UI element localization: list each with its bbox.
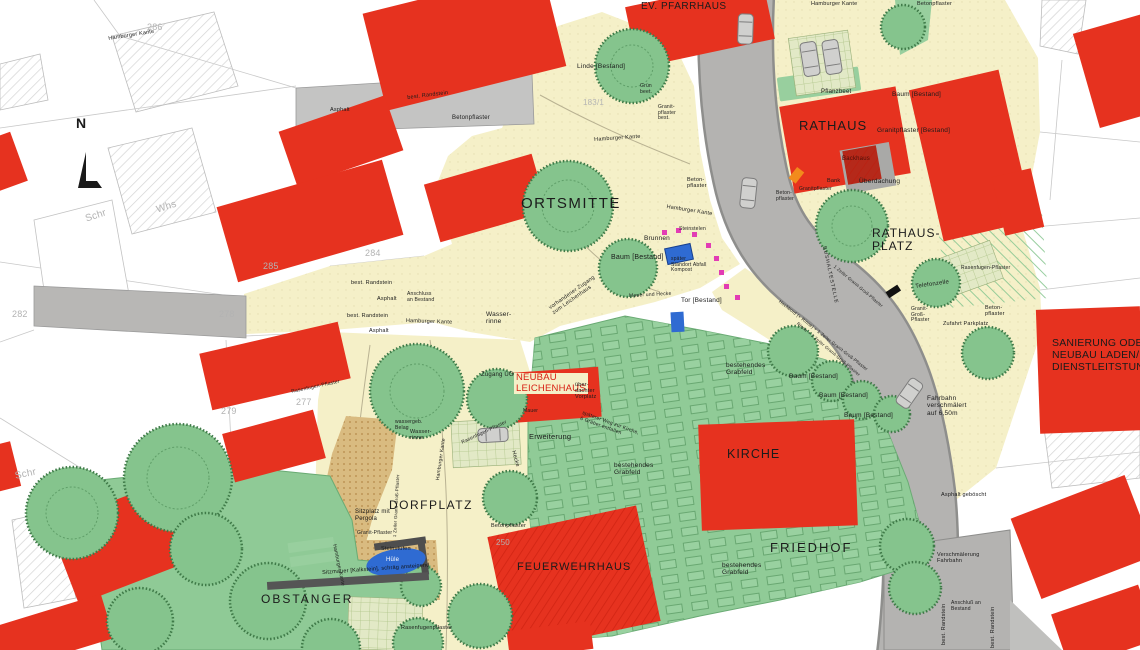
building-corner-ne: [1073, 14, 1140, 128]
wasserstelle: [670, 312, 684, 333]
tree-rathausplatz: [816, 190, 888, 262]
north-arrow: [78, 152, 102, 188]
site-plan-ortsmitte: ORTSMITTERATHAUSRATHAUS- PLATZKIRCHEFRIE…: [0, 0, 1140, 650]
building-west-2: [222, 410, 326, 483]
plan-drawing: [0, 0, 1140, 650]
building-southeast-1: [1011, 475, 1140, 599]
backhaus-group: [840, 142, 897, 194]
tree-linde: [595, 29, 669, 103]
tree-ortsmitte: [523, 161, 613, 251]
building-southeast-2: [1051, 585, 1140, 650]
building-southwest-2: [0, 594, 114, 650]
building-kirche: [698, 419, 858, 530]
building-sanierung: [1036, 306, 1140, 434]
